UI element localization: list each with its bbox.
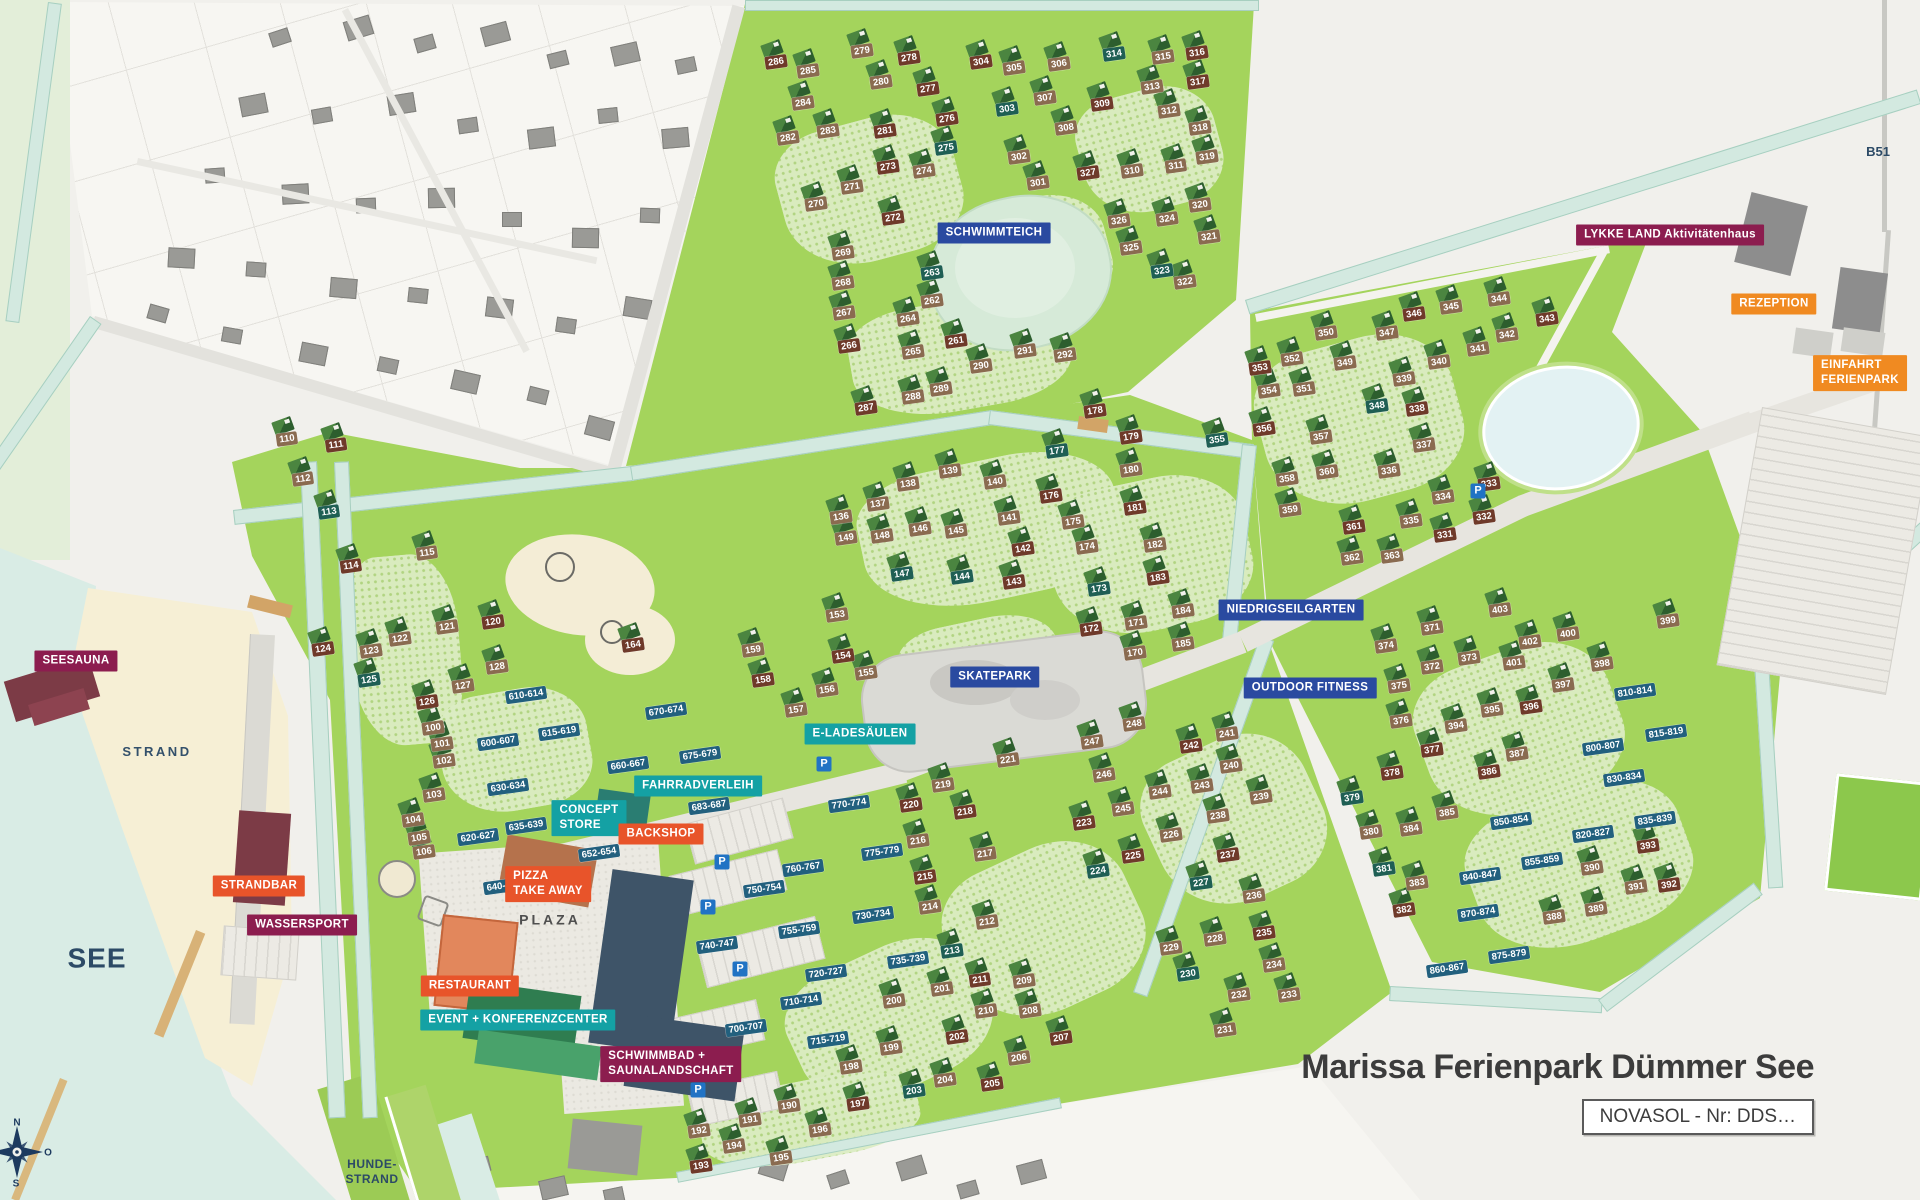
parking-icon: P — [701, 900, 716, 915]
village-house — [527, 126, 556, 149]
area-label-hunde-strand: HUNDE- STRAND — [346, 1157, 399, 1187]
facility-label-seesauna: SEESAUNA — [34, 651, 117, 672]
parking-icon: P — [817, 757, 832, 772]
area-label-plaza: PLAZA — [519, 911, 581, 929]
road-b51 — [1882, 0, 1887, 232]
village-house — [502, 212, 522, 227]
entrance-building — [1841, 327, 1886, 357]
title-block: Marissa Ferienpark Dümmer See NOVASOL - … — [1301, 1048, 1814, 1135]
compass-east-label: O — [44, 1148, 52, 1159]
parking-icon: P — [733, 962, 748, 977]
facility-label-backshop: BACKSHOP — [618, 824, 703, 845]
parking-icon: P — [691, 1083, 706, 1098]
facility-label-concept-store: CONCEPT STORE — [551, 800, 626, 836]
facility-label-schwimmbad-saunalandschaft: SCHWIMMBAD + SAUNALANDSCHAFT — [600, 1046, 741, 1082]
village-house — [407, 287, 428, 304]
village-house — [661, 127, 690, 149]
facility-label-skatepark: SKATEPARK — [950, 667, 1039, 688]
canal — [745, 0, 1259, 11]
parking-lot-entrance — [1717, 407, 1920, 695]
facility-label-strandbar: STRANDBAR — [213, 876, 305, 897]
facility-label-event-konferenzcenter: EVENT + KONFERENZCENTER — [420, 1010, 615, 1031]
facility-label-niedrigseilgarten: NIEDRIGSEILGARTEN — [1219, 600, 1364, 621]
village-house — [572, 228, 599, 248]
compass-south-label: S — [13, 1179, 20, 1190]
facility-label-restaurant: RESTAURANT — [421, 976, 519, 997]
parking-icon: P — [715, 855, 730, 870]
facility-label-wassersport: WASSERSPORT — [247, 915, 357, 936]
village-house — [555, 317, 577, 335]
facility-label-outdoor-fitness: OUTDOOR FITNESS — [1244, 678, 1377, 699]
village-house — [221, 326, 243, 344]
facility-label-fahrradverleih: FAHRRADVERLEIH — [634, 776, 762, 797]
area-label-see: SEE — [67, 941, 126, 976]
village-house — [597, 107, 618, 124]
ferienpark-site-map: 1001011021031041051061101111121131141151… — [0, 0, 1920, 1200]
facility-label-e-lades-ulen: E-LADESÄULEN — [805, 724, 916, 745]
area-label-b51: B51 — [1866, 144, 1890, 160]
playground-feature — [545, 552, 575, 582]
village-house — [640, 208, 661, 224]
village-house — [167, 247, 195, 268]
rezeption-building — [1832, 267, 1888, 335]
map-title: Marissa Ferienpark Dümmer See — [1301, 1048, 1814, 1087]
village-house — [246, 261, 267, 277]
facility-label-schwimmteich: SCHWIMMTEICH — [938, 223, 1051, 244]
facility-label-rezeption: REZEPTION — [1731, 294, 1816, 315]
gray-building — [568, 1118, 643, 1175]
compass-north-label: N — [13, 1118, 20, 1129]
novasol-number-box[interactable]: NOVASOL - Nr: DDS… — [1582, 1099, 1814, 1135]
house-range-label: 860-867 — [1426, 960, 1468, 979]
facility-label-einfahrt-ferienpark: EINFAHRT FERIENPARK — [1813, 355, 1907, 391]
area-label-strand: STRAND — [122, 744, 191, 760]
village-house — [457, 117, 479, 135]
facility-label-pizza-take-away: PIZZA TAKE AWAY — [505, 866, 591, 902]
sports-field — [1824, 773, 1920, 901]
canal — [1389, 986, 1603, 1013]
parking-icon: P — [1471, 484, 1486, 499]
round-plaza-feature — [378, 860, 416, 898]
facility-label-lykke-land-aktivit-tenhaus: LYKKE LAND Aktivitätenhaus — [1576, 225, 1764, 246]
village-house — [329, 277, 358, 299]
entrance-building — [1792, 327, 1833, 358]
